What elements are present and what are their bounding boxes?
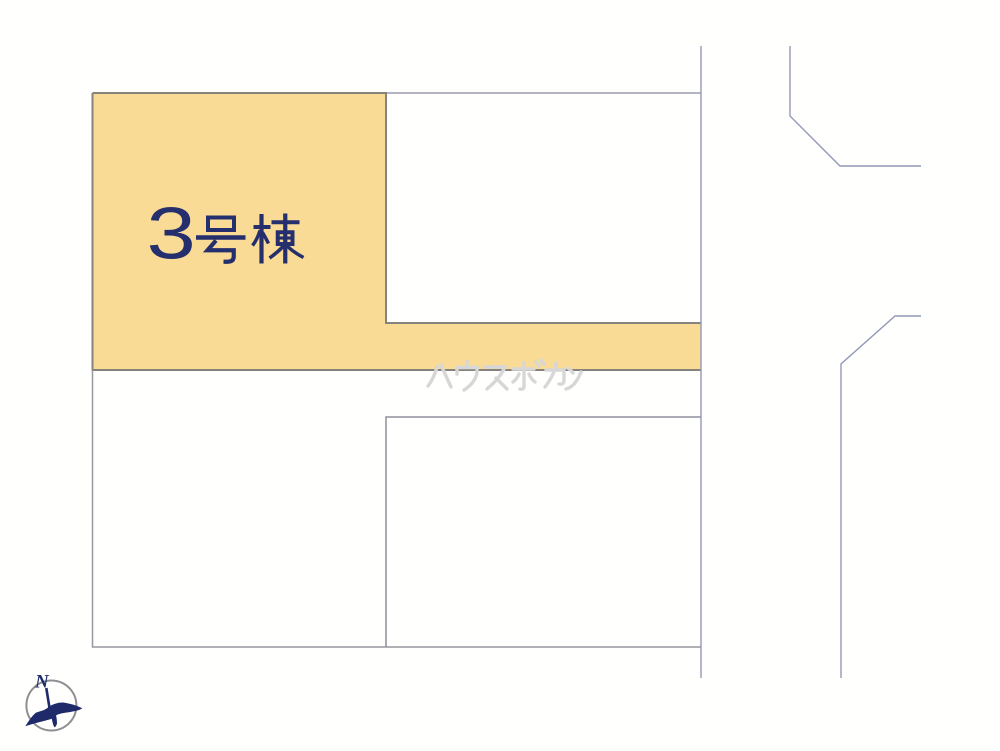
svg-text:3: 3 bbox=[147, 193, 196, 275]
svg-text:N: N bbox=[34, 672, 50, 693]
